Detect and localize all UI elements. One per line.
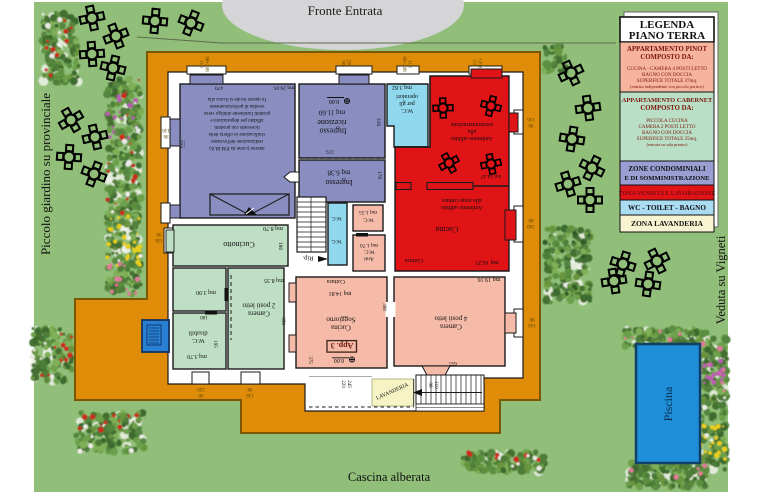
svg-text:W.C.: W.C.: [362, 217, 374, 223]
svg-text:470: 470: [215, 85, 224, 91]
svg-text:Anti: Anti: [364, 256, 374, 262]
svg-text:PICCOLA CUCINA: PICCOLA CUCINA: [646, 119, 688, 124]
svg-text:Cucinotto: Cucinotto: [223, 240, 255, 249]
svg-text:Camera: Camera: [439, 323, 462, 331]
svg-text:operatori: operatori: [396, 93, 418, 99]
svg-text:realizzazione dell'avranno: realizzazione dell'avranno: [210, 138, 263, 143]
svg-text:CUCINA - CAMERA 4 POSTI LETTO: CUCINA - CAMERA 4 POSTI LETTO: [627, 67, 707, 72]
svg-text:110: 110: [198, 60, 203, 68]
svg-text:Piccolo giardino su provincial: Piccolo giardino su provinciale: [38, 93, 53, 255]
svg-text:310: 310: [375, 118, 381, 127]
svg-text:555: 555: [179, 140, 185, 149]
svg-text:W.C.: W.C.: [191, 337, 204, 344]
svg-text:Fronte Entrata: Fronte Entrata: [308, 3, 383, 18]
svg-text:per gli: per gli: [399, 100, 415, 106]
svg-text:CAMERA 2 POSTI LETTO: CAMERA 2 POSTI LETTO: [639, 125, 696, 130]
svg-text:Cottura: Cottura: [327, 278, 345, 284]
svg-text:vendita di perfezionamento: vendita di perfezionamento: [209, 103, 264, 108]
svg-text:375: 375: [307, 356, 312, 364]
svg-text:Cottura: Cottura: [405, 257, 423, 263]
svg-text:W.C.: W.C.: [400, 107, 413, 113]
svg-text:alla: alla: [467, 128, 476, 134]
svg-text:96: 96: [529, 316, 535, 321]
svg-text:mq 26.05: mq 26.05: [273, 85, 294, 91]
svg-text:W.C.: W.C.: [330, 215, 342, 221]
svg-text:mq 19.16: mq 19.16: [478, 276, 501, 282]
svg-text:Camera: Camera: [247, 310, 270, 318]
svg-text:96+208: 96+208: [401, 56, 406, 72]
svg-text:App. 3: App. 3: [331, 341, 354, 350]
svg-text:+208: +208: [477, 58, 482, 69]
svg-text:mq 3.70: mq 3.70: [187, 353, 207, 359]
svg-text:mq 1.55: mq 1.55: [359, 209, 377, 215]
svg-text:W.C.: W.C.: [330, 238, 342, 244]
svg-text:mq 6.38: mq 6.38: [327, 169, 350, 177]
svg-text:Ingresso: Ingresso: [325, 178, 352, 187]
svg-text:(entrata indipendente con picc: (entrata indipendente con piccolo portic…: [630, 84, 704, 89]
svg-text:COMPOSTO DA:: COMPOSTO DA:: [640, 105, 693, 112]
svg-text:98: 98: [427, 383, 432, 389]
svg-text:Cucina: Cucina: [435, 225, 458, 234]
svg-text:Ingresso: Ingresso: [319, 127, 346, 136]
svg-text:Piscina: Piscina: [661, 386, 675, 421]
svg-text:208: 208: [346, 59, 351, 67]
svg-text:disabili: disabili: [188, 330, 207, 337]
svg-text:375: 375: [326, 148, 335, 154]
svg-text:110: 110: [471, 59, 476, 67]
svg-text:interno (come da P.M.M.A): interno (come da P.M.M.A): [209, 145, 265, 150]
svg-text:2 posti letto: 2 posti letto: [242, 302, 276, 310]
svg-text:W.C.: W.C.: [363, 249, 375, 255]
svg-text:PIANO TERRA: PIANO TERRA: [629, 30, 706, 42]
svg-text:ricevendo con prodotti: ricevendo con prodotti: [214, 124, 260, 129]
svg-text:245: 245: [346, 380, 351, 388]
svg-text:0.00: 0.00: [329, 98, 340, 104]
svg-text:136: 136: [246, 392, 254, 397]
svg-text:BAGNO CON DOCCIA: BAGNO CON DOCCIA: [642, 73, 692, 78]
svg-text:170: 170: [376, 171, 382, 180]
svg-text:Soggiorno: Soggiorno: [326, 316, 356, 324]
svg-text:398: 398: [381, 303, 386, 311]
svg-text:COMPOSTO DA:: COMPOSTO DA:: [640, 54, 693, 61]
svg-text:Veduta su Vigneti: Veduta su Vigneti: [714, 235, 728, 324]
svg-text:alla zona cottura: alla zona cottura: [442, 197, 482, 203]
svg-text:mq 3.82: mq 3.82: [392, 84, 412, 90]
svg-text:98+208: 98+208: [204, 56, 209, 72]
svg-text:ricezione: ricezione: [317, 118, 347, 127]
svg-text:BAGNO CON DOCCIA: BAGNO CON DOCCIA: [642, 131, 692, 136]
svg-text:96: 96: [156, 231, 162, 236]
svg-text:APPARTAMENTO PINOT: APPARTAMENTO PINOT: [627, 46, 707, 53]
svg-text:136: 136: [527, 116, 535, 121]
svg-text:4 posti letto: 4 posti letto: [434, 315, 468, 323]
svg-text:110: 110: [407, 60, 412, 68]
svg-text:ZONE CONDOMINIALI: ZONE CONDOMINIALI: [628, 165, 705, 173]
svg-text:affidato per degustazioni e: affidato per degustazioni e: [210, 117, 264, 122]
svg-text:96: 96: [340, 61, 345, 67]
svg-text:136: 136: [155, 237, 163, 242]
svg-text:mq 8.70: mq 8.70: [263, 225, 283, 231]
svg-text:mq 14.81: mq 14.81: [329, 290, 352, 296]
svg-text:Ambiente adibito: Ambiente adibito: [441, 204, 483, 210]
svg-text:136: 136: [528, 322, 536, 327]
svg-text:195: 195: [212, 340, 217, 348]
svg-text:98: 98: [247, 386, 253, 391]
svg-text:80: 80: [528, 217, 534, 222]
svg-text:90: 90: [198, 392, 204, 397]
svg-text:mq 1.70: mq 1.70: [360, 242, 378, 248]
svg-text:APPARTAMENTO CABERNET: APPARTAMENTO CABERNET: [622, 97, 713, 104]
svg-text:Rip.: Rip.: [302, 255, 313, 262]
svg-text:Cucina: Cucina: [330, 324, 351, 332]
svg-text:vinificazione in offerta della: vinificazione in offerta della: [208, 131, 265, 136]
svg-text:mq 11.60: mq 11.60: [318, 109, 345, 117]
svg-text:180: 180: [200, 314, 208, 319]
svg-text:mq 16.25: mq 16.25: [476, 259, 499, 265]
svg-text:(entrata su sala pranzo): (entrata su sala pranzo): [647, 142, 688, 147]
svg-text:340: 340: [527, 223, 535, 228]
svg-text:186: 186: [277, 242, 283, 251]
svg-text:prodotti l'ambiente obbligo ve: prodotti l'ambiente obbligo verso: [203, 110, 270, 115]
svg-text:somministrazione: somministrazione: [450, 121, 493, 127]
svg-text:In questo locale si ricava all: In questo locale si ricava alla: [207, 96, 266, 101]
svg-text:655: 655: [449, 360, 457, 365]
svg-text:mq 3.90: mq 3.90: [196, 289, 216, 295]
svg-text:mq 8.35: mq 8.35: [264, 277, 284, 283]
svg-text:ZONA VENDITA E LAVORAZIONE: ZONA VENDITA E LAVORAZIONE: [619, 191, 716, 197]
svg-text:Ambiente adibito: Ambiente adibito: [451, 135, 493, 141]
svg-text:136: 136: [162, 127, 170, 132]
svg-text:WC - TOILET - BAGNO: WC - TOILET - BAGNO: [628, 204, 706, 212]
svg-text:220: 220: [340, 380, 345, 388]
svg-text:110: 110: [433, 381, 438, 389]
svg-text:E DI SOMMINISTRAZIONE: E DI SOMMINISTRAZIONE: [624, 175, 710, 182]
svg-text:396: 396: [280, 317, 285, 325]
svg-text:220: 220: [197, 386, 205, 391]
svg-text:ZONA LAVANDERIA: ZONA LAVANDERIA: [631, 219, 704, 228]
svg-text:96: 96: [163, 133, 169, 138]
svg-text:96: 96: [528, 122, 534, 127]
svg-text:Cascina alberata: Cascina alberata: [348, 470, 431, 484]
